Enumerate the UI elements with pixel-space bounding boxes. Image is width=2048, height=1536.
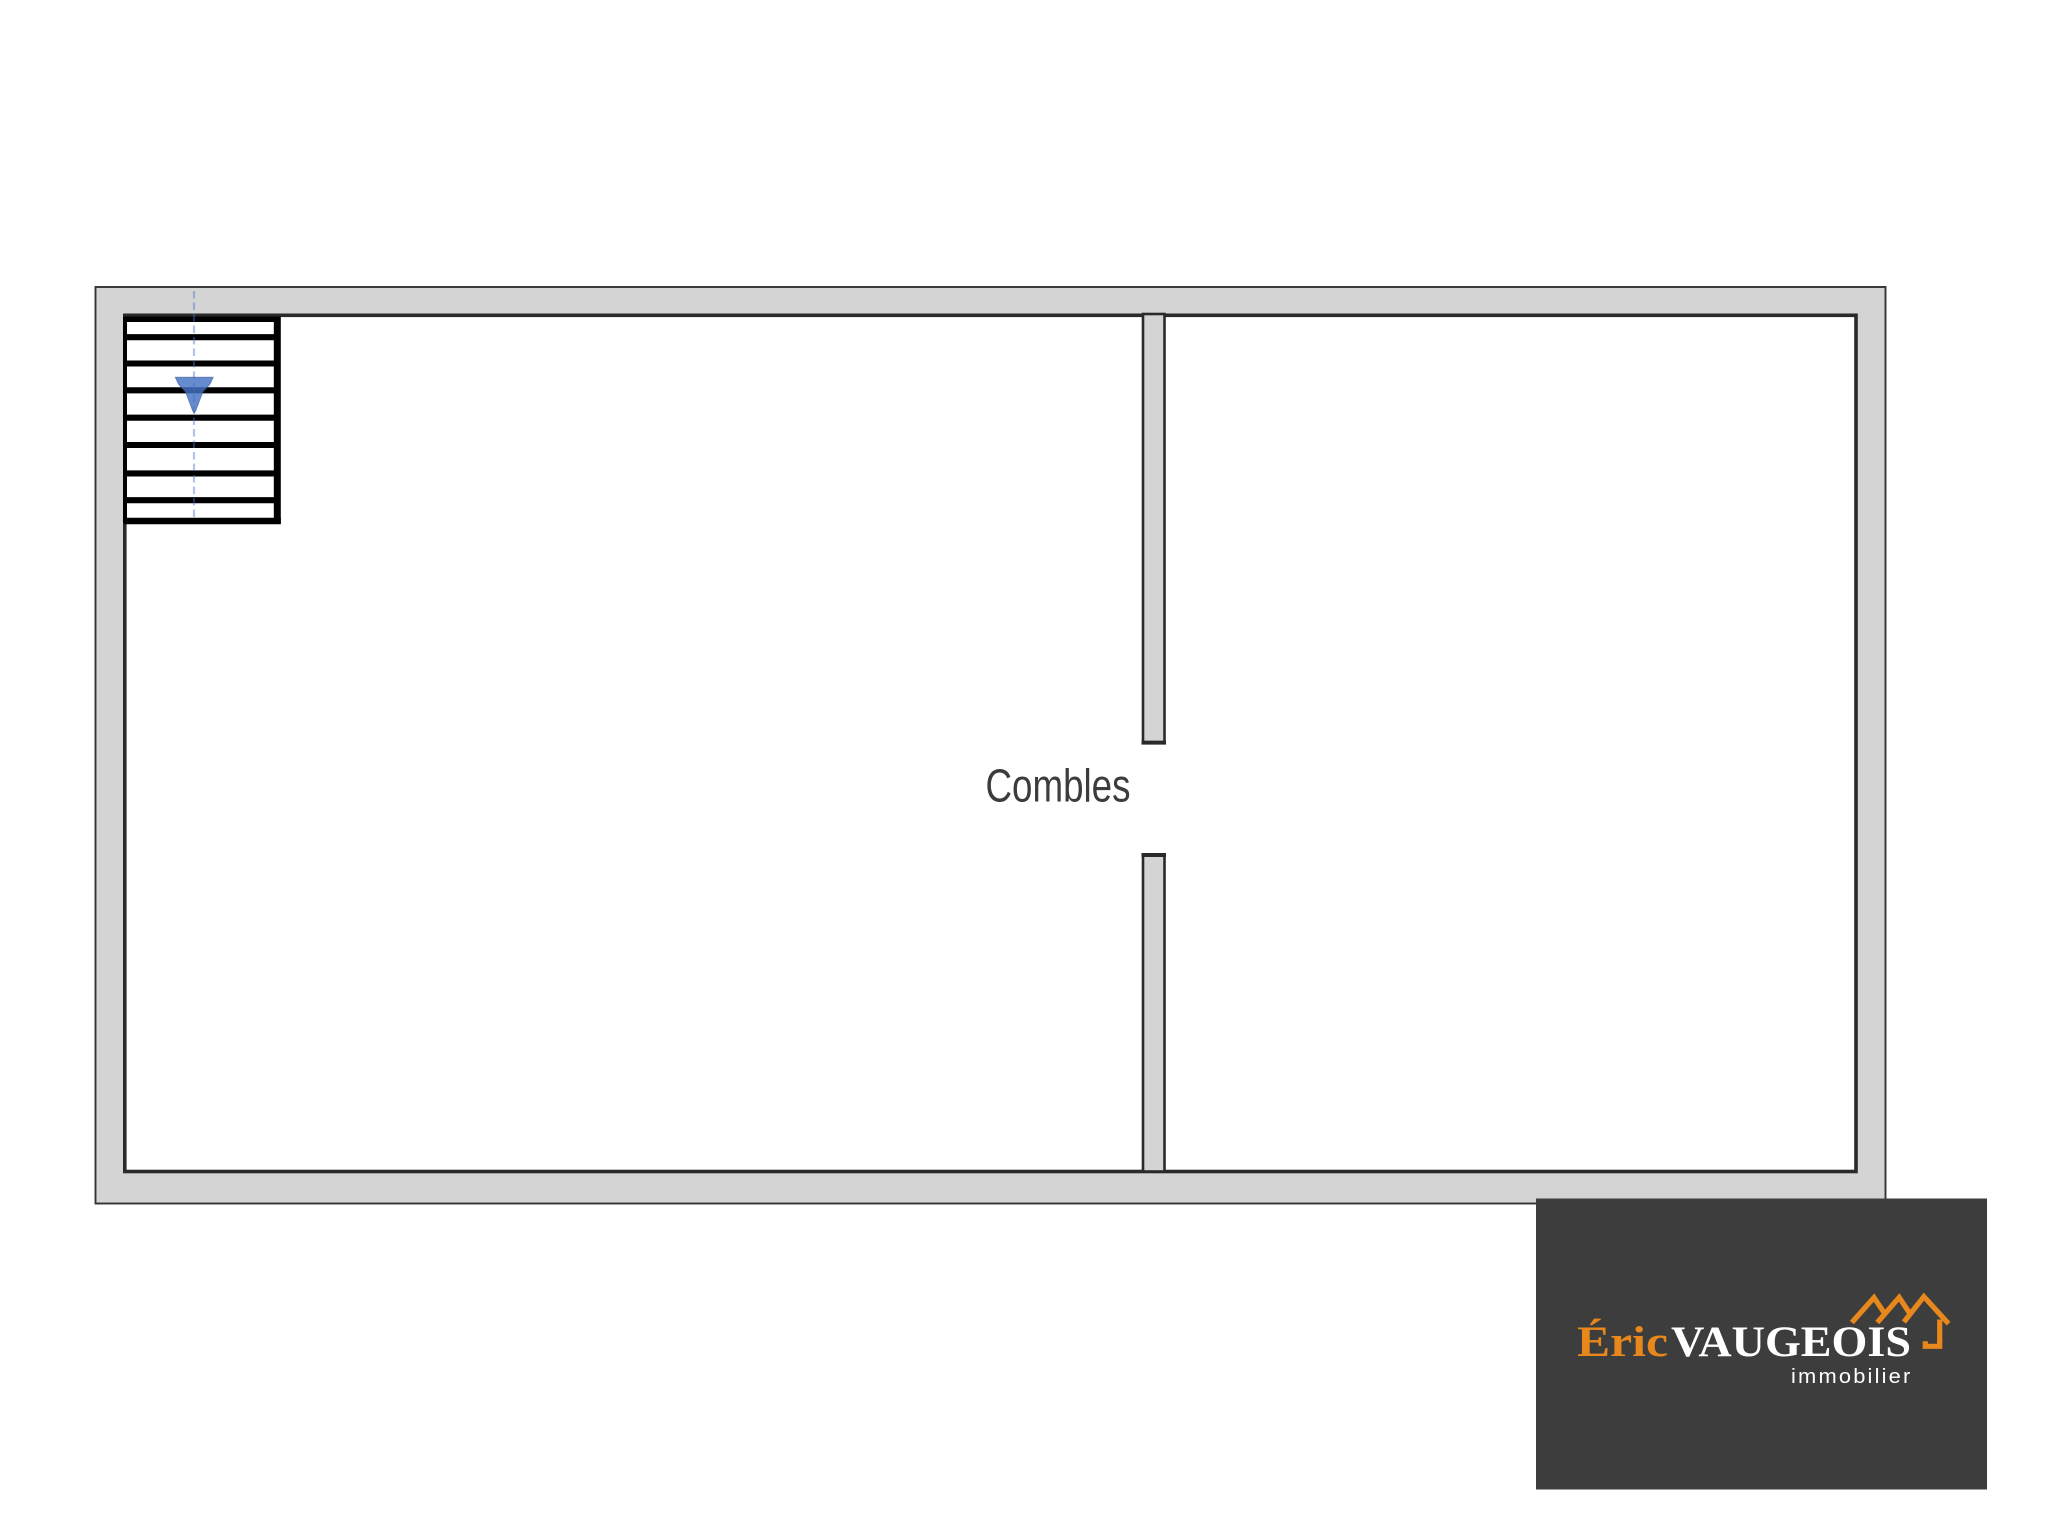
svg-text:Combles: Combles — [986, 760, 1131, 812]
svg-text:VAUGEOIS: VAUGEOIS — [1671, 1319, 1911, 1366]
svg-text:Éric: Éric — [1577, 1319, 1668, 1366]
svg-text:immobilier: immobilier — [1791, 1366, 1913, 1388]
